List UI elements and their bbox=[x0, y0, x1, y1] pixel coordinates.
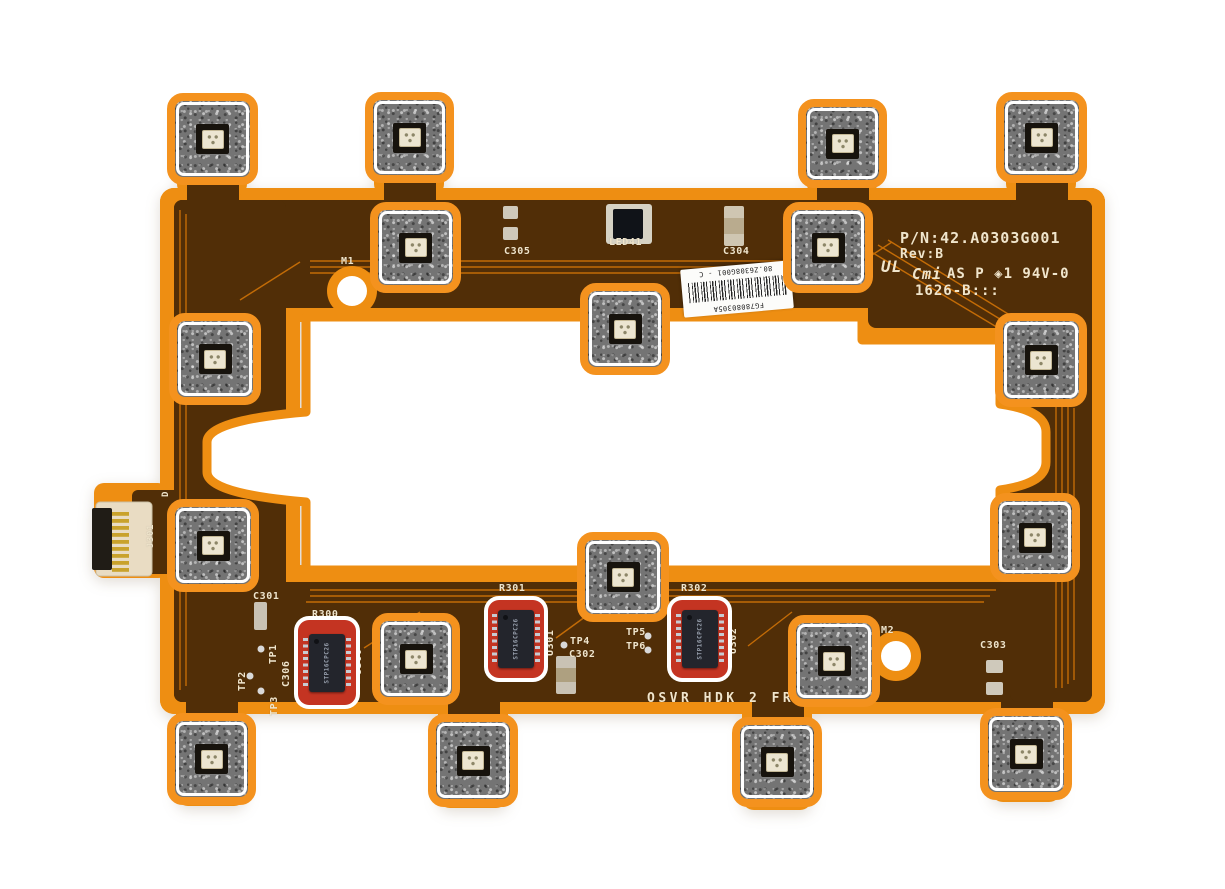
chip-marking-text: STP16CPC26 bbox=[513, 618, 520, 659]
label-led41: LED41 bbox=[609, 237, 642, 248]
photo-canvas: C305LED41C304M1C301R300TP1C306TP2TP3U300… bbox=[0, 0, 1225, 889]
chip-pin1-dimple bbox=[314, 639, 319, 644]
ir-led-socket bbox=[607, 562, 640, 592]
label-r302: R302 bbox=[681, 583, 707, 594]
ir-led-die bbox=[201, 750, 223, 769]
ic-marker-u302: STP16CPC26 bbox=[671, 600, 728, 678]
ul-logo: UL bbox=[881, 257, 902, 276]
ir-led-socket bbox=[1010, 739, 1043, 769]
led-marker-16 bbox=[428, 714, 518, 807]
label-u301: U301 bbox=[545, 630, 556, 656]
ic-marker-u300: STP16CPC26 bbox=[298, 620, 356, 705]
ir-led-die bbox=[1030, 351, 1052, 370]
label-tp1: TP1 bbox=[268, 644, 279, 664]
chip-pin1-dimple bbox=[687, 615, 692, 620]
led-marker-13 bbox=[372, 613, 460, 705]
label-c305: C305 bbox=[504, 246, 530, 257]
label-r301: R301 bbox=[499, 583, 525, 594]
ir-led-socket bbox=[195, 744, 228, 774]
led-marker-2 bbox=[365, 92, 454, 183]
led-marker-14 bbox=[788, 615, 880, 707]
ir-led-socket bbox=[812, 233, 845, 263]
ir-led-socket bbox=[1019, 523, 1052, 553]
cmi-logo: Cmi bbox=[912, 265, 942, 283]
ir-led-socket bbox=[196, 124, 229, 154]
label-tp6: TP6 bbox=[626, 641, 646, 652]
capacitor-c301 bbox=[254, 602, 267, 630]
label-tp5: TP5 bbox=[626, 627, 646, 638]
ir-led-die bbox=[614, 320, 636, 339]
label-j301: J301 bbox=[146, 524, 156, 548]
led-driver-chip: STP16CPC26 bbox=[309, 634, 345, 692]
ir-led-die bbox=[832, 134, 854, 153]
ir-led-socket bbox=[609, 314, 642, 344]
ir-led-die bbox=[202, 130, 224, 149]
ir-led-die bbox=[612, 568, 634, 587]
led-marker-18 bbox=[980, 708, 1072, 800]
led-marker-6 bbox=[783, 202, 873, 293]
ffc-connector bbox=[92, 502, 152, 576]
ir-led-socket bbox=[399, 233, 432, 263]
ir-led-die bbox=[766, 753, 788, 772]
label-m2: M2 bbox=[881, 625, 894, 636]
ir-led-socket bbox=[1025, 123, 1058, 153]
led-marker-8 bbox=[169, 313, 261, 405]
led-marker-11 bbox=[990, 493, 1080, 582]
led-marker-10 bbox=[995, 313, 1087, 407]
label-tp2: TP2 bbox=[237, 671, 248, 691]
ir-led-socket bbox=[400, 644, 433, 674]
ir-led-socket bbox=[199, 344, 232, 374]
revision-text: Rev:B bbox=[900, 247, 944, 262]
label-c302: C302 bbox=[569, 649, 595, 660]
ir-led-die bbox=[204, 350, 226, 369]
part-number-text: P/N:42.A0303G001 bbox=[900, 229, 1061, 247]
ir-led-die bbox=[1031, 128, 1053, 147]
ir-led-socket bbox=[818, 646, 851, 676]
barcode-label: FG78080305A 80.Z6308G001 - C bbox=[680, 260, 794, 317]
label-tp4: TP4 bbox=[570, 636, 590, 647]
label-m1: M1 bbox=[341, 256, 354, 267]
date-code-text: 1626-B::: bbox=[915, 283, 1000, 299]
ir-led-die bbox=[462, 751, 484, 770]
ir-led-socket bbox=[1025, 345, 1058, 375]
chip-marking-text: STP16CPC26 bbox=[696, 618, 703, 659]
cert-line-text: AS P ◈1 94V-0 bbox=[947, 266, 1070, 282]
label-r300: R300 bbox=[312, 609, 338, 620]
led-marker-15 bbox=[167, 713, 256, 805]
led-marker-3 bbox=[798, 99, 887, 188]
chip-pin1-dimple bbox=[503, 615, 508, 620]
ir-led-die bbox=[202, 536, 224, 555]
capacitor-c304 bbox=[724, 206, 744, 246]
led-driver-chip: STP16CPC26 bbox=[498, 610, 534, 668]
barcode bbox=[687, 275, 786, 303]
ir-led-socket bbox=[826, 129, 859, 159]
led-marker-1 bbox=[167, 93, 258, 185]
ir-led-socket bbox=[457, 746, 490, 776]
label-d: D bbox=[161, 491, 171, 497]
label-c304: C304 bbox=[723, 246, 749, 257]
ir-led-die bbox=[823, 652, 845, 671]
label-c303: C303 bbox=[980, 640, 1006, 651]
barcode-serial-text: FG78080305A bbox=[713, 301, 764, 313]
led-driver-chip: STP16CPC26 bbox=[682, 610, 718, 668]
ir-led-socket bbox=[393, 123, 426, 153]
label-u302: U302 bbox=[728, 628, 739, 654]
chip-marking-text: STP16CPC26 bbox=[324, 642, 331, 683]
label-c306: C306 bbox=[281, 661, 292, 687]
led-marker-7 bbox=[580, 283, 670, 375]
led-marker-9 bbox=[167, 499, 259, 592]
ir-led-die bbox=[1024, 528, 1046, 547]
led-marker-4 bbox=[996, 92, 1087, 183]
ir-led-socket bbox=[761, 747, 794, 777]
label-c301: C301 bbox=[253, 591, 279, 602]
ir-led-die bbox=[405, 238, 427, 257]
led-marker-12 bbox=[577, 532, 669, 622]
led-marker-5 bbox=[370, 202, 461, 293]
ir-led-die bbox=[399, 128, 421, 147]
ir-led-die bbox=[405, 650, 427, 669]
ir-led-socket bbox=[197, 531, 230, 561]
label-tp3: TP3 bbox=[269, 696, 280, 716]
led-marker-17 bbox=[732, 717, 822, 807]
ir-led-die bbox=[817, 238, 839, 257]
ir-led-die bbox=[1015, 745, 1037, 764]
ic-marker-u301: STP16CPC26 bbox=[488, 600, 544, 678]
capacitor-c302 bbox=[556, 656, 576, 694]
